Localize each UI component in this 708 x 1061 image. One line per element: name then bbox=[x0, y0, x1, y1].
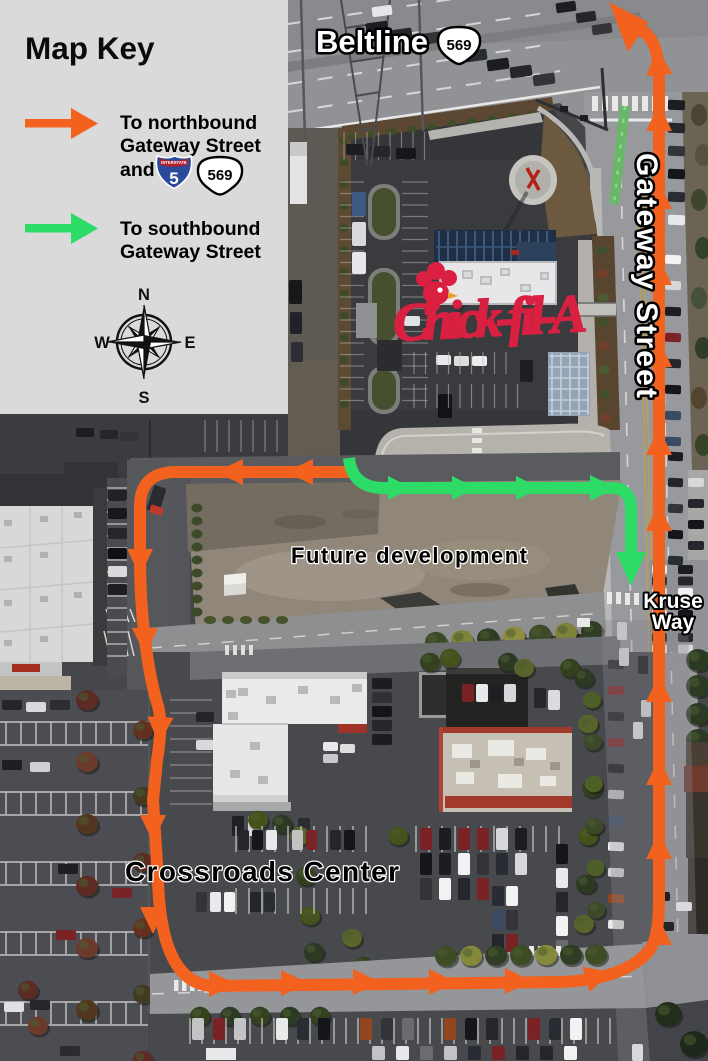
svg-text:E: E bbox=[184, 334, 195, 352]
svg-text:569: 569 bbox=[207, 167, 232, 184]
svg-text:Beltline: Beltline bbox=[316, 24, 428, 59]
svg-text:Map Key: Map Key bbox=[25, 30, 155, 66]
svg-text:INTERSTATE: INTERSTATE bbox=[161, 160, 187, 165]
svg-text:S: S bbox=[138, 389, 149, 407]
svg-text:Gateway Street: Gateway Street bbox=[120, 241, 261, 263]
svg-text:Crossroads Center: Crossroads Center bbox=[125, 856, 399, 887]
svg-text:To northbound: To northbound bbox=[120, 112, 257, 134]
svg-text:5: 5 bbox=[169, 169, 178, 188]
svg-text:Gateway Street: Gateway Street bbox=[120, 135, 261, 157]
svg-text:Way: Way bbox=[652, 611, 695, 634]
svg-text:569: 569 bbox=[446, 37, 471, 54]
svg-text:Gateway Street: Gateway Street bbox=[630, 153, 663, 398]
svg-text:Chick-fil-A: Chick-fil-A bbox=[391, 283, 588, 353]
svg-text:and: and bbox=[120, 159, 155, 181]
svg-text:To southbound: To southbound bbox=[120, 218, 260, 240]
svg-text:N: N bbox=[138, 286, 150, 304]
svg-text:W: W bbox=[94, 334, 110, 352]
svg-text:Future development: Future development bbox=[291, 543, 528, 568]
svg-text:Kruse: Kruse bbox=[643, 590, 703, 613]
